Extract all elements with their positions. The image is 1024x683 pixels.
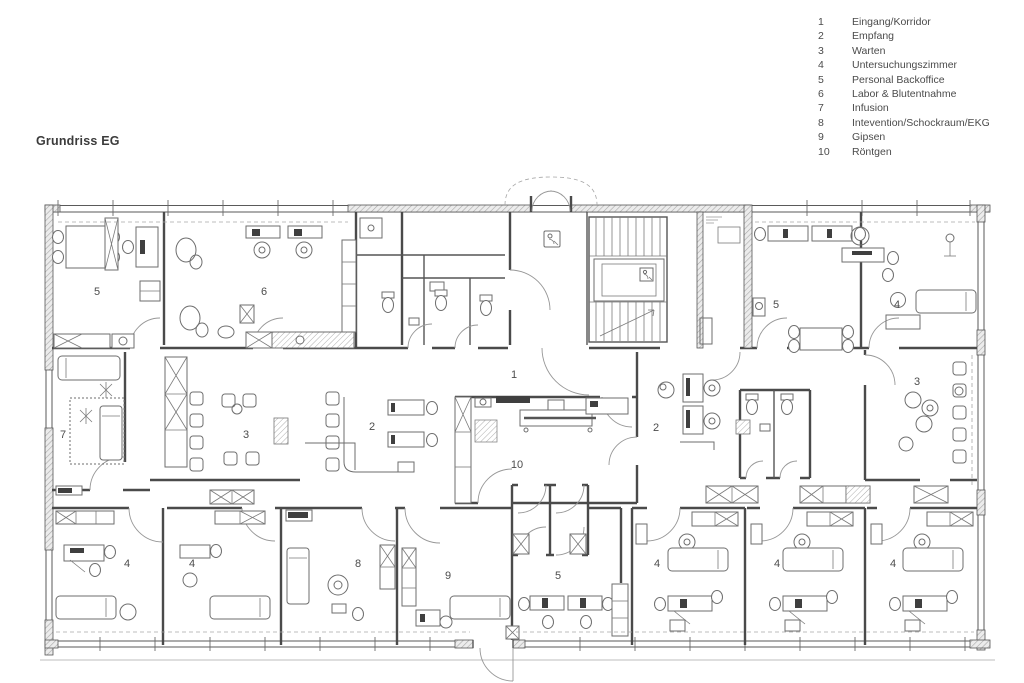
- room-number-label: 7: [60, 429, 66, 441]
- wc-right-furniture: [746, 394, 793, 431]
- xray-room-furniture: [455, 396, 628, 503]
- room-number-label: 3: [914, 376, 920, 388]
- room-number-label: 5: [773, 299, 779, 311]
- window-mullions-bottom: [100, 637, 965, 651]
- waiting-right-furniture: [899, 355, 972, 485]
- room-number-label: 4: [890, 558, 896, 570]
- infusion-furniture: [56, 356, 124, 495]
- room-number-label: 6: [261, 286, 267, 298]
- room-number-label: 4: [774, 558, 780, 570]
- floor-plan: 56547321102344895444: [0, 0, 1024, 683]
- intervention-furniture: [286, 510, 395, 621]
- room-number-label: 4: [124, 558, 130, 570]
- wheelchair-icon: [544, 231, 560, 247]
- room-number-label: 1: [511, 369, 517, 381]
- backoffice-tr-furniture: [753, 226, 866, 353]
- room-number-label: 4: [894, 299, 900, 311]
- wc-block-furniture: [360, 218, 492, 325]
- room-number-label: 5: [555, 570, 561, 582]
- entrance-double-door: [532, 191, 570, 211]
- staircase: [589, 217, 667, 342]
- room-number-label: 4: [189, 558, 195, 570]
- exterior-door: [480, 648, 513, 681]
- room-number-label: 2: [369, 421, 375, 433]
- room-number-label: 10: [511, 459, 523, 471]
- furniture: [53, 217, 977, 639]
- room-number-label: 5: [94, 286, 100, 298]
- technical-room-label: [700, 217, 740, 344]
- room-number-label: 3: [243, 429, 249, 441]
- reception-right-furniture: [658, 374, 750, 450]
- elevator: [594, 259, 664, 301]
- room-number-label: 9: [445, 570, 451, 582]
- backoffice-bottom-furniture: [506, 534, 628, 639]
- reception-left-furniture: [344, 397, 438, 472]
- room-number-label: 4: [654, 558, 660, 570]
- room-number-label: 2: [653, 422, 659, 434]
- gips-room-furniture: [402, 548, 510, 628]
- waiting-left-furniture: [165, 357, 355, 471]
- room-number-label: 8: [355, 558, 361, 570]
- backoffice-tl-furniture: [53, 218, 161, 348]
